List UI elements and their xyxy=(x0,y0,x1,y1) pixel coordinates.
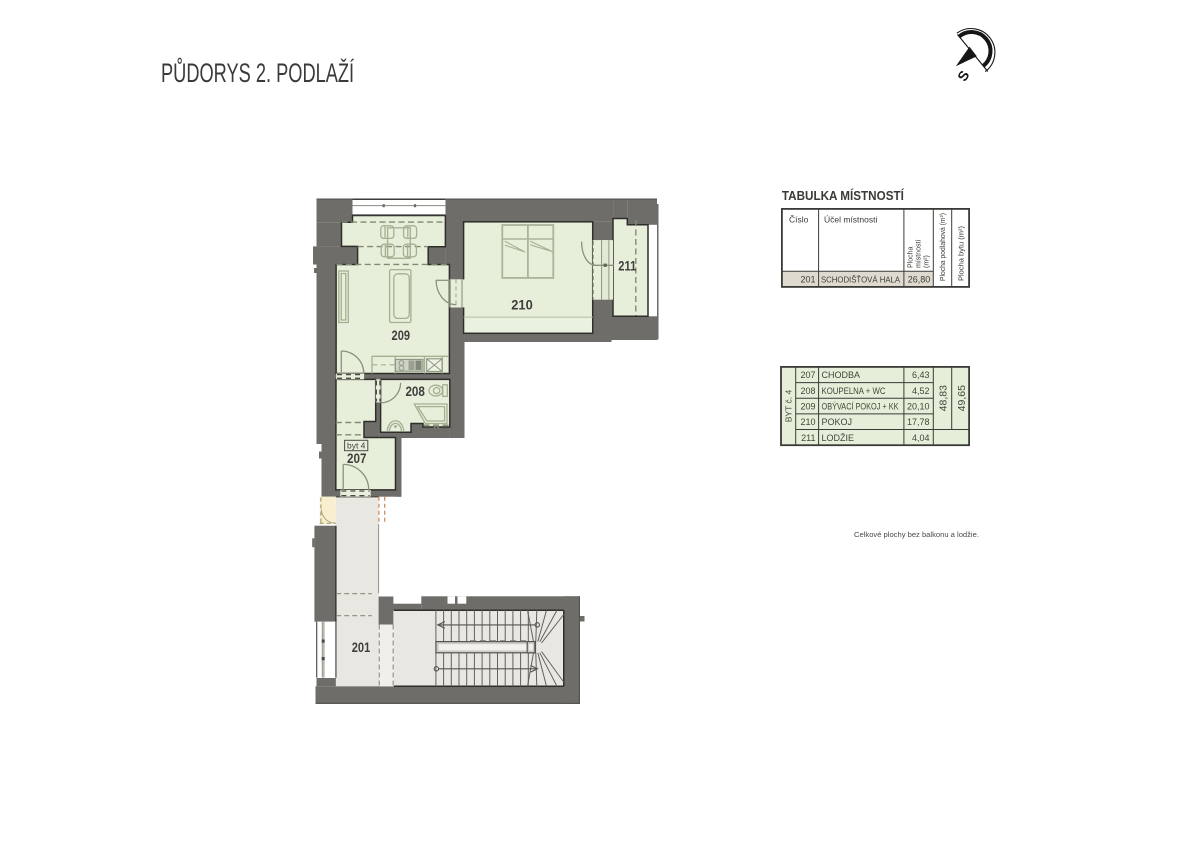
svg-text:BYT č. 4: BYT č. 4 xyxy=(784,390,794,423)
svg-text:48,83: 48,83 xyxy=(938,385,950,411)
svg-text:LODŽIE: LODŽIE xyxy=(822,433,855,443)
svg-text:210: 210 xyxy=(511,298,533,313)
svg-text:SCHODIŠŤOVÁ HALA: SCHODIŠŤOVÁ HALA xyxy=(821,275,900,285)
svg-text:POKOJ: POKOJ xyxy=(822,417,853,427)
svg-text:Číslo: Číslo xyxy=(789,215,809,225)
svg-text:Plocha bytu (m²): Plocha bytu (m²) xyxy=(959,226,966,281)
svg-text:17,78: 17,78 xyxy=(907,417,930,427)
svg-text:Plocha: Plocha xyxy=(908,246,915,268)
svg-text:201: 201 xyxy=(800,275,815,285)
svg-text:Plocha podlahová (m²): Plocha podlahová (m²) xyxy=(940,213,947,281)
svg-text:6,43: 6,43 xyxy=(912,370,930,380)
svg-text:207: 207 xyxy=(347,451,367,466)
svg-text:CHODBA: CHODBA xyxy=(822,370,861,380)
svg-text:KOUPELNA + WC: KOUPELNA + WC xyxy=(822,386,886,396)
svg-text:209: 209 xyxy=(392,328,411,343)
svg-text:Celkové plochy bez balkonu a l: Celkové plochy bez balkonu a lodžie. xyxy=(854,530,979,539)
svg-text:208: 208 xyxy=(800,386,815,396)
svg-text:Účel místnosti: Účel místnosti xyxy=(824,215,877,225)
svg-text:byt 4: byt 4 xyxy=(347,440,366,450)
svg-text:(m²): (m²) xyxy=(924,255,931,268)
svg-text:201: 201 xyxy=(352,640,371,655)
svg-text:S: S xyxy=(954,68,973,84)
svg-text:211: 211 xyxy=(618,258,636,273)
svg-text:208: 208 xyxy=(405,384,425,399)
svg-text:26,80: 26,80 xyxy=(908,275,931,285)
svg-text:20,10: 20,10 xyxy=(907,402,930,412)
svg-text:209: 209 xyxy=(800,402,815,412)
svg-text:210: 210 xyxy=(800,417,815,427)
svg-text:4,52: 4,52 xyxy=(912,386,930,396)
svg-text:4,04: 4,04 xyxy=(912,433,930,443)
svg-text:OBÝVACÍ POKOJ + KK: OBÝVACÍ POKOJ + KK xyxy=(822,402,899,412)
svg-text:207: 207 xyxy=(800,370,815,380)
svg-text:211: 211 xyxy=(801,433,815,443)
svg-text:49,65: 49,65 xyxy=(956,385,968,411)
svg-text:místností: místností xyxy=(916,240,923,268)
svg-text:TABULKA MÍSTNOSTÍ: TABULKA MÍSTNOSTÍ xyxy=(782,188,904,203)
